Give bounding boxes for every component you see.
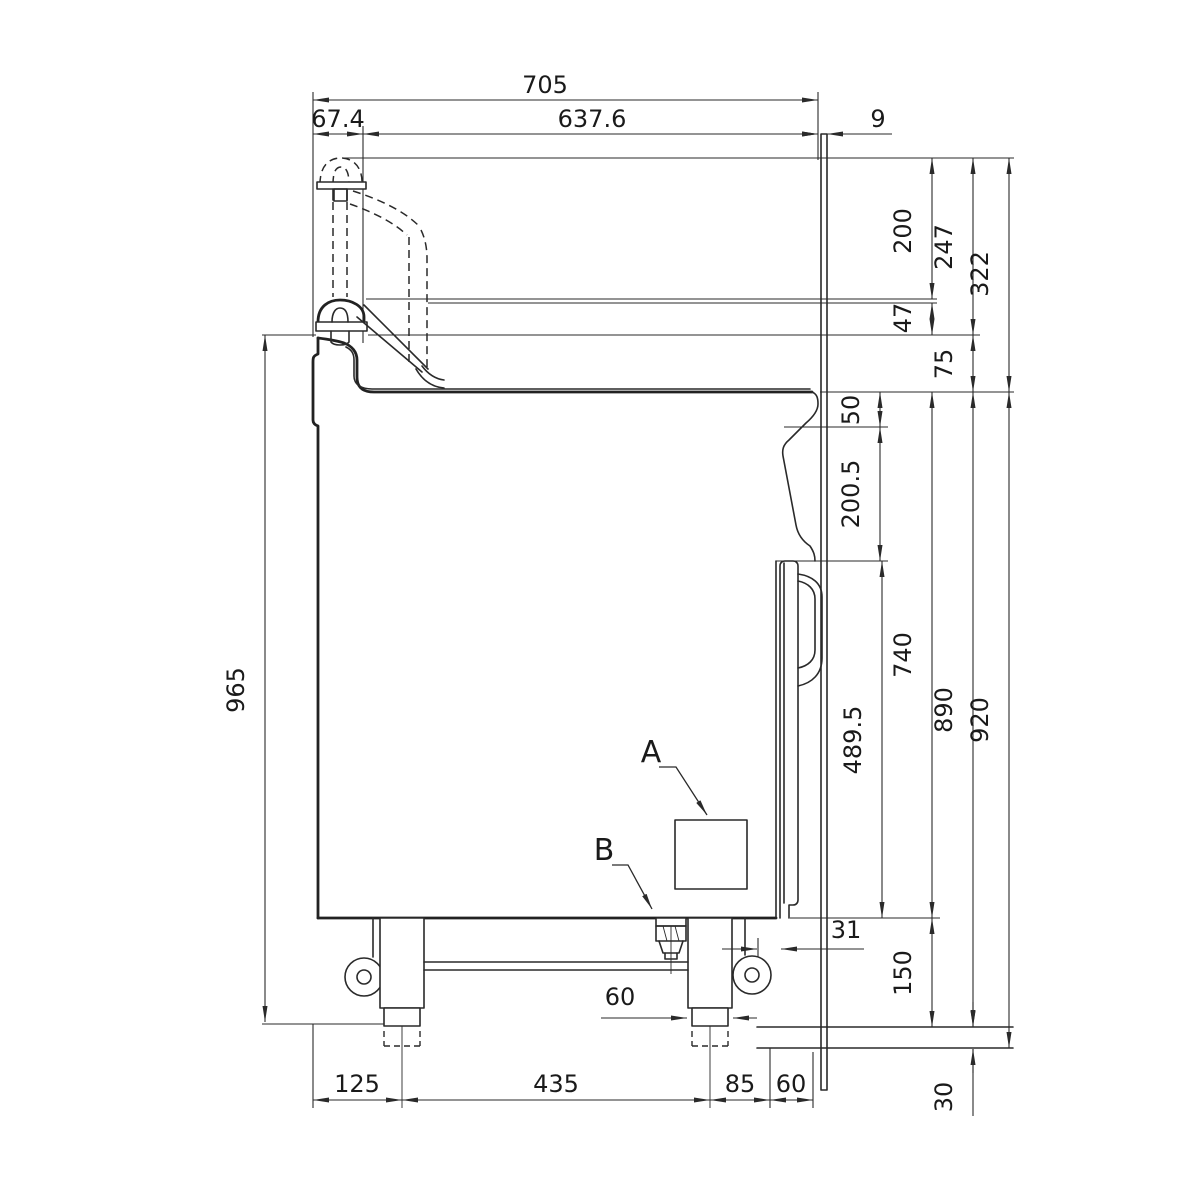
dimension-texts: 705 67.4 637.6 9 200 47 247 75 322 50 20… bbox=[222, 71, 994, 1112]
technical-drawing-page: 705 67.4 637.6 9 200 47 247 75 322 50 20… bbox=[0, 0, 1200, 1200]
rear-foot bbox=[692, 1008, 728, 1026]
detail-b-cable-gland bbox=[656, 918, 686, 974]
undercarriage bbox=[345, 918, 1013, 1108]
dim-overall-worktop-height: 920 bbox=[966, 697, 994, 743]
dim-foot-adjustment: 30 bbox=[930, 1082, 958, 1113]
rear-leg bbox=[688, 918, 732, 1008]
leg-rail bbox=[424, 962, 688, 970]
lid-open-dashed bbox=[317, 158, 427, 368]
label-detail-b: B bbox=[594, 833, 615, 868]
dim-leg-spacing: 435 bbox=[533, 1070, 579, 1098]
dim-upper-panel: 200.5 bbox=[837, 460, 865, 529]
dim-overall-height: 965 bbox=[222, 667, 250, 713]
dim-lid-depth: 637.6 bbox=[558, 105, 627, 133]
leader-b bbox=[612, 865, 652, 909]
dim-base-clearance: 150 bbox=[889, 950, 917, 996]
front-foot bbox=[384, 1008, 420, 1026]
front-leg bbox=[380, 918, 424, 1008]
dim-overall-depth: 705 bbox=[522, 71, 568, 99]
dim-open-above-worktop: 322 bbox=[966, 251, 994, 297]
detail-a-box bbox=[675, 820, 747, 889]
lid-closed bbox=[316, 300, 444, 388]
dim-worktop-to-wheel-floor: 890 bbox=[930, 687, 958, 733]
dim-worktop-edge-drop: 50 bbox=[837, 395, 865, 426]
leader-a bbox=[659, 767, 707, 815]
dim-lid-hinge-offset: 67.4 bbox=[311, 105, 364, 133]
dim-handle-base-to-worktop: 75 bbox=[930, 349, 958, 380]
dim-foot-diameter: 60 bbox=[605, 983, 636, 1011]
dim-rear-panel-offset: 60 bbox=[776, 1070, 807, 1098]
dim-rear-clearance: 31 bbox=[831, 916, 862, 944]
dim-open-to-handle-base: 247 bbox=[930, 224, 958, 270]
dim-rear-leg-offset: 85 bbox=[725, 1070, 756, 1098]
dimension-drawing: 705 67.4 637.6 9 200 47 247 75 322 50 20… bbox=[0, 0, 1200, 1200]
dim-front-leg-offset: 125 bbox=[334, 1070, 380, 1098]
dim-door-panel: 489.5 bbox=[839, 706, 867, 775]
dim-rear-gap: 9 bbox=[870, 105, 885, 133]
dim-worktop-to-base: 740 bbox=[889, 632, 917, 678]
label-detail-a: A bbox=[641, 735, 662, 770]
dim-handle-step: 47 bbox=[889, 303, 917, 334]
dim-open-lid-height: 200 bbox=[889, 208, 917, 254]
